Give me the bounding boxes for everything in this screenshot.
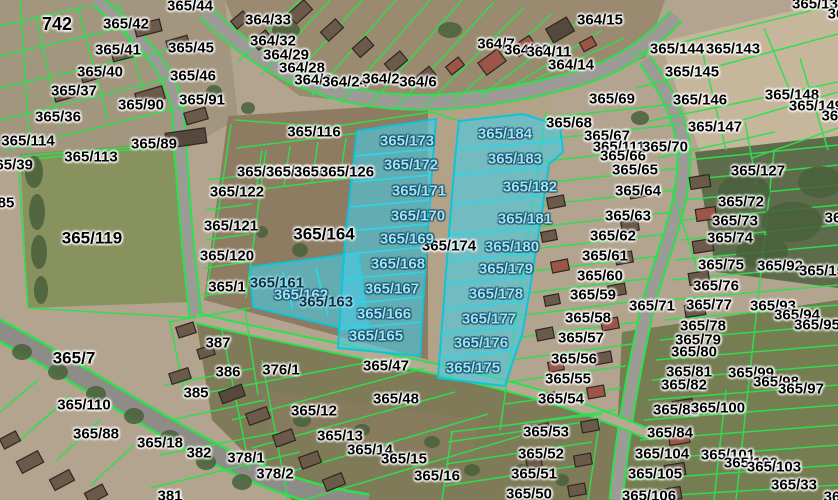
parcel-label: 365/144 (650, 42, 704, 57)
parcel-label: 381 (157, 489, 182, 500)
parcel-label: 365/47 (363, 359, 409, 374)
parcel-label: 365/18 (137, 436, 183, 451)
parcel-label: 365/106 (622, 489, 676, 500)
parcel-label: 365/145 (665, 65, 719, 80)
parcel-label: 365/90 (118, 98, 164, 113)
parcel-label: 365/51 (511, 467, 557, 482)
parcel-label: 365/84 (647, 426, 693, 441)
parcel-label: 365/95 (794, 318, 838, 333)
parcel-label: 365/56 (551, 352, 597, 367)
parcel-label: 365/178 (469, 287, 523, 302)
map-viewport[interactable]: 742365/42365/44364/33365/41365/45364/323… (0, 0, 838, 500)
parcel-label: 365/33 (771, 478, 817, 493)
parcel-label: 365/168 (371, 257, 425, 272)
parcel-label: 365/69 (589, 92, 635, 107)
parcel-label: 376/1 (262, 363, 300, 378)
parcel-label: 386 (215, 365, 240, 380)
parcel-label: 365/103 (747, 460, 801, 475)
parcel-label: 365/146 (673, 93, 727, 108)
parcel-label: 365/75 (698, 258, 744, 273)
parcel-label: 364/33 (245, 13, 291, 28)
parcel-label: 36 (824, 490, 838, 500)
parcel-label: 365/161 (250, 276, 304, 291)
parcel-label: 365/65 (612, 163, 658, 178)
parcel-label: 365/36 (35, 110, 81, 125)
parcel-label: 364/2 (362, 72, 400, 87)
parcel-label: 365/179 (479, 262, 533, 277)
parcel-label: 365/58 (565, 311, 611, 326)
parcel-label: 365/15 (381, 452, 427, 467)
parcel-label: 365/62 (590, 229, 636, 244)
parcel-label: 365/1 (208, 280, 246, 295)
parcel-label: 364/6 (399, 75, 437, 90)
parcel-label: 365/59 (570, 288, 616, 303)
parcel-label: 365/171 (392, 184, 446, 199)
parcel-label: 364/14 (548, 58, 594, 73)
parcel-label: 365/182 (503, 180, 557, 195)
parcel-label: 364/24 (322, 75, 368, 90)
parcel-label: 365/175 (446, 361, 500, 376)
parcel-label: 365/91 (179, 93, 225, 108)
parcel-label: 365/82 (661, 378, 707, 393)
parcel-label: 365/119 (62, 230, 123, 247)
parcel-label: 365/46 (170, 69, 216, 84)
parcel-label: 365/63 (605, 209, 651, 224)
parcel-label: 378/2 (256, 467, 294, 482)
parcel-label: 365 (821, 109, 838, 124)
parcel-label: 365/61 (582, 249, 628, 264)
parcel-label: 365/55 (545, 372, 591, 387)
parcel-label: 365/70 (642, 140, 688, 155)
parcel-label: 365/92 (757, 259, 803, 274)
parcel-label: 36 (825, 211, 838, 226)
parcel-label: 365/170 (391, 209, 445, 224)
parcel-label: 365/50 (506, 487, 552, 500)
parcel-label: 365/121 (204, 219, 258, 234)
parcel-label: 365/172 (384, 158, 438, 173)
parcel-label: 365/166 (357, 307, 411, 322)
parcel-label: 365/100 (691, 401, 745, 416)
parcel-label: 365/7 (53, 350, 96, 367)
parcel-label: 365/77 (686, 298, 732, 313)
parcel-label: 365/164 (293, 226, 354, 243)
parcel-label: 36 (828, 7, 838, 22)
parcel-label: 365/114 (1, 134, 54, 149)
parcel-label: 365/163 (299, 295, 353, 310)
parcel-label: 365/165 (349, 329, 403, 344)
parcel-label: 365/60 (577, 269, 623, 284)
parcel-label: 365/52 (518, 447, 564, 462)
parcel-label: 365/39 (0, 158, 33, 173)
parcel-label: 365/42 (103, 17, 149, 32)
parcel-label: 365/105 (628, 467, 682, 482)
parcel-label: 365/97 (778, 382, 824, 397)
parcel-label: 387 (205, 336, 230, 351)
parcel-label: 364/15 (577, 13, 623, 28)
parcel-label: 365/53 (523, 425, 569, 440)
parcel-label: 365/37 (51, 84, 97, 99)
parcel-label: 365/169 (380, 232, 434, 247)
parcel-label: 365/181 (498, 212, 552, 227)
parcel-label: 365/15 (799, 264, 838, 279)
parcel-label: 365/167 (365, 282, 419, 297)
parcel-label: 365/54 (538, 392, 584, 407)
parcel-label: 365/73 (712, 214, 758, 229)
parcel-label: 85 (0, 196, 14, 211)
parcel-label: 365/12 (291, 404, 337, 419)
parcel-label: 365/126 (320, 165, 374, 180)
parcel-label: 365/44 (167, 0, 213, 14)
parcel-label: 365/88 (73, 427, 119, 442)
parcel-label: 365/177 (462, 312, 516, 327)
parcel-label: 365/104 (635, 447, 689, 462)
parcel-label: 365/127 (731, 164, 785, 179)
parcel-label: 365/89 (131, 137, 177, 152)
parcel-label: 365/143 (706, 42, 760, 57)
parcel-label: 365/40 (77, 65, 123, 80)
parcel-label: 365/72 (718, 195, 764, 210)
parcel-label: 365/57 (558, 331, 604, 346)
parcel-label: 365/147 (688, 120, 742, 135)
parcel-label: 365/113 (64, 150, 117, 165)
parcel-label: 365/120 (200, 249, 254, 264)
parcel-label: 365/74 (707, 231, 753, 246)
parcel-label: 365/180 (485, 240, 539, 255)
parcel-label: 382 (186, 446, 211, 461)
parcel-label: 365/64 (615, 184, 661, 199)
parcel-label: 365/80 (671, 345, 717, 360)
parcel-label: 365/45 (168, 41, 214, 56)
parcel-label: 365/71 (629, 299, 675, 314)
parcel-label: 365/110 (57, 398, 110, 413)
parcel-label: 365/16 (414, 469, 460, 484)
parcel-label: 365/41 (95, 43, 141, 58)
parcel-label: 378/1 (227, 451, 265, 466)
parcel-label: 365/183 (488, 152, 542, 167)
parcel-label: 365/176 (454, 336, 508, 351)
parcel-label: 742 (42, 15, 72, 33)
labels-layer: 742365/42365/44364/33365/41365/45364/323… (0, 0, 838, 500)
parcel-label: 365/173 (380, 134, 434, 149)
parcel-label: 365/48 (373, 392, 419, 407)
parcel-label: 365/184 (478, 127, 532, 142)
parcel-label: 365/116 (287, 125, 340, 140)
parcel-label: 365/76 (693, 279, 739, 294)
parcel-label: 365/122 (210, 185, 264, 200)
parcel-label: 385 (183, 386, 208, 401)
